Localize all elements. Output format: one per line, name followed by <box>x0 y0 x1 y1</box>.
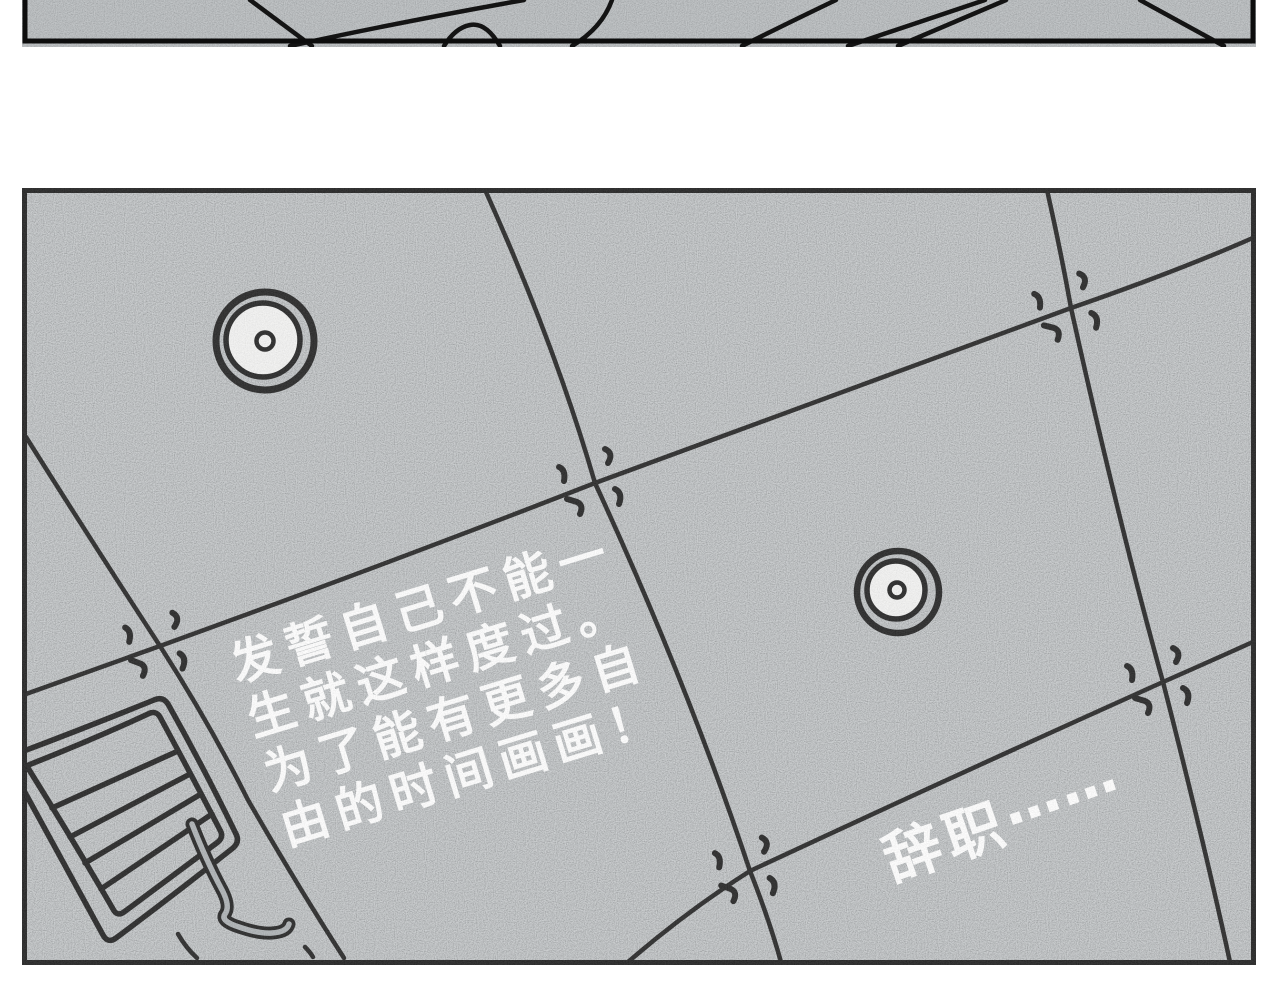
ceiling-lamp-left <box>216 292 314 390</box>
panel-previous <box>22 0 1256 47</box>
ceiling-drawing <box>22 188 1256 965</box>
ceiling-lamp-right <box>857 551 939 633</box>
previous-panel-art <box>22 0 1256 47</box>
panel-main: 发誓自己不能一 生就这样度过。 为了能有更多自 由的时间画画！ 辞职…… <box>22 188 1256 965</box>
comic-page: 发誓自己不能一 生就这样度过。 为了能有更多自 由的时间画画！ 辞职…… <box>0 0 1280 1000</box>
